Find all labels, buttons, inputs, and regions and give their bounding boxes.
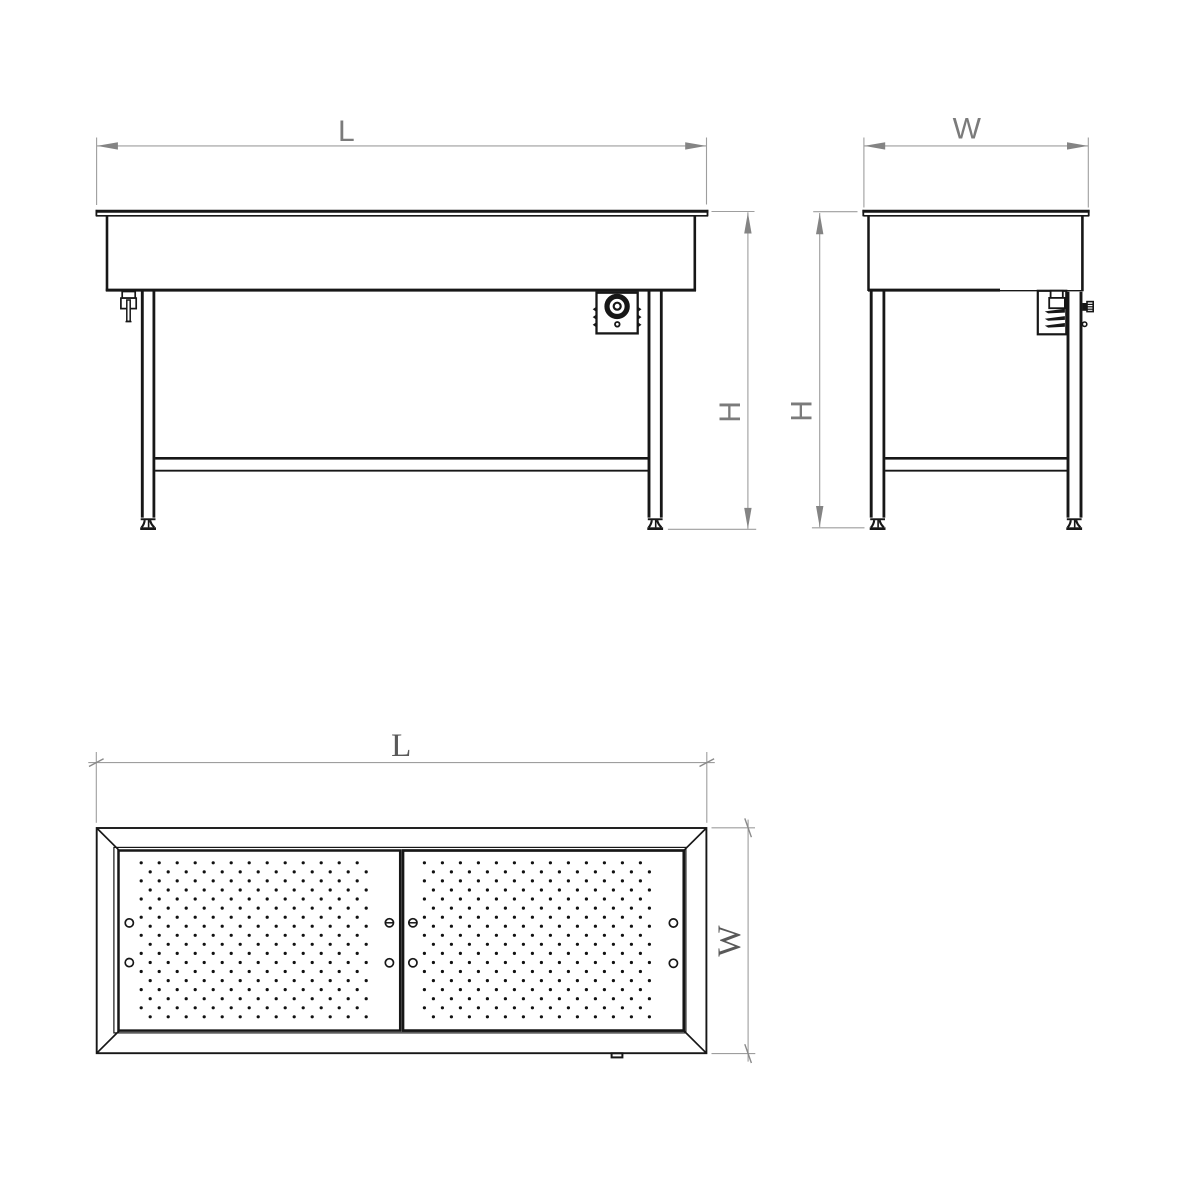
svg-text:H: H [714, 401, 747, 423]
svg-text:L: L [338, 115, 355, 148]
svg-text:W: W [712, 925, 748, 957]
svg-text:L: L [391, 728, 411, 764]
svg-text:W: W [953, 113, 982, 146]
svg-text:H: H [785, 400, 818, 422]
